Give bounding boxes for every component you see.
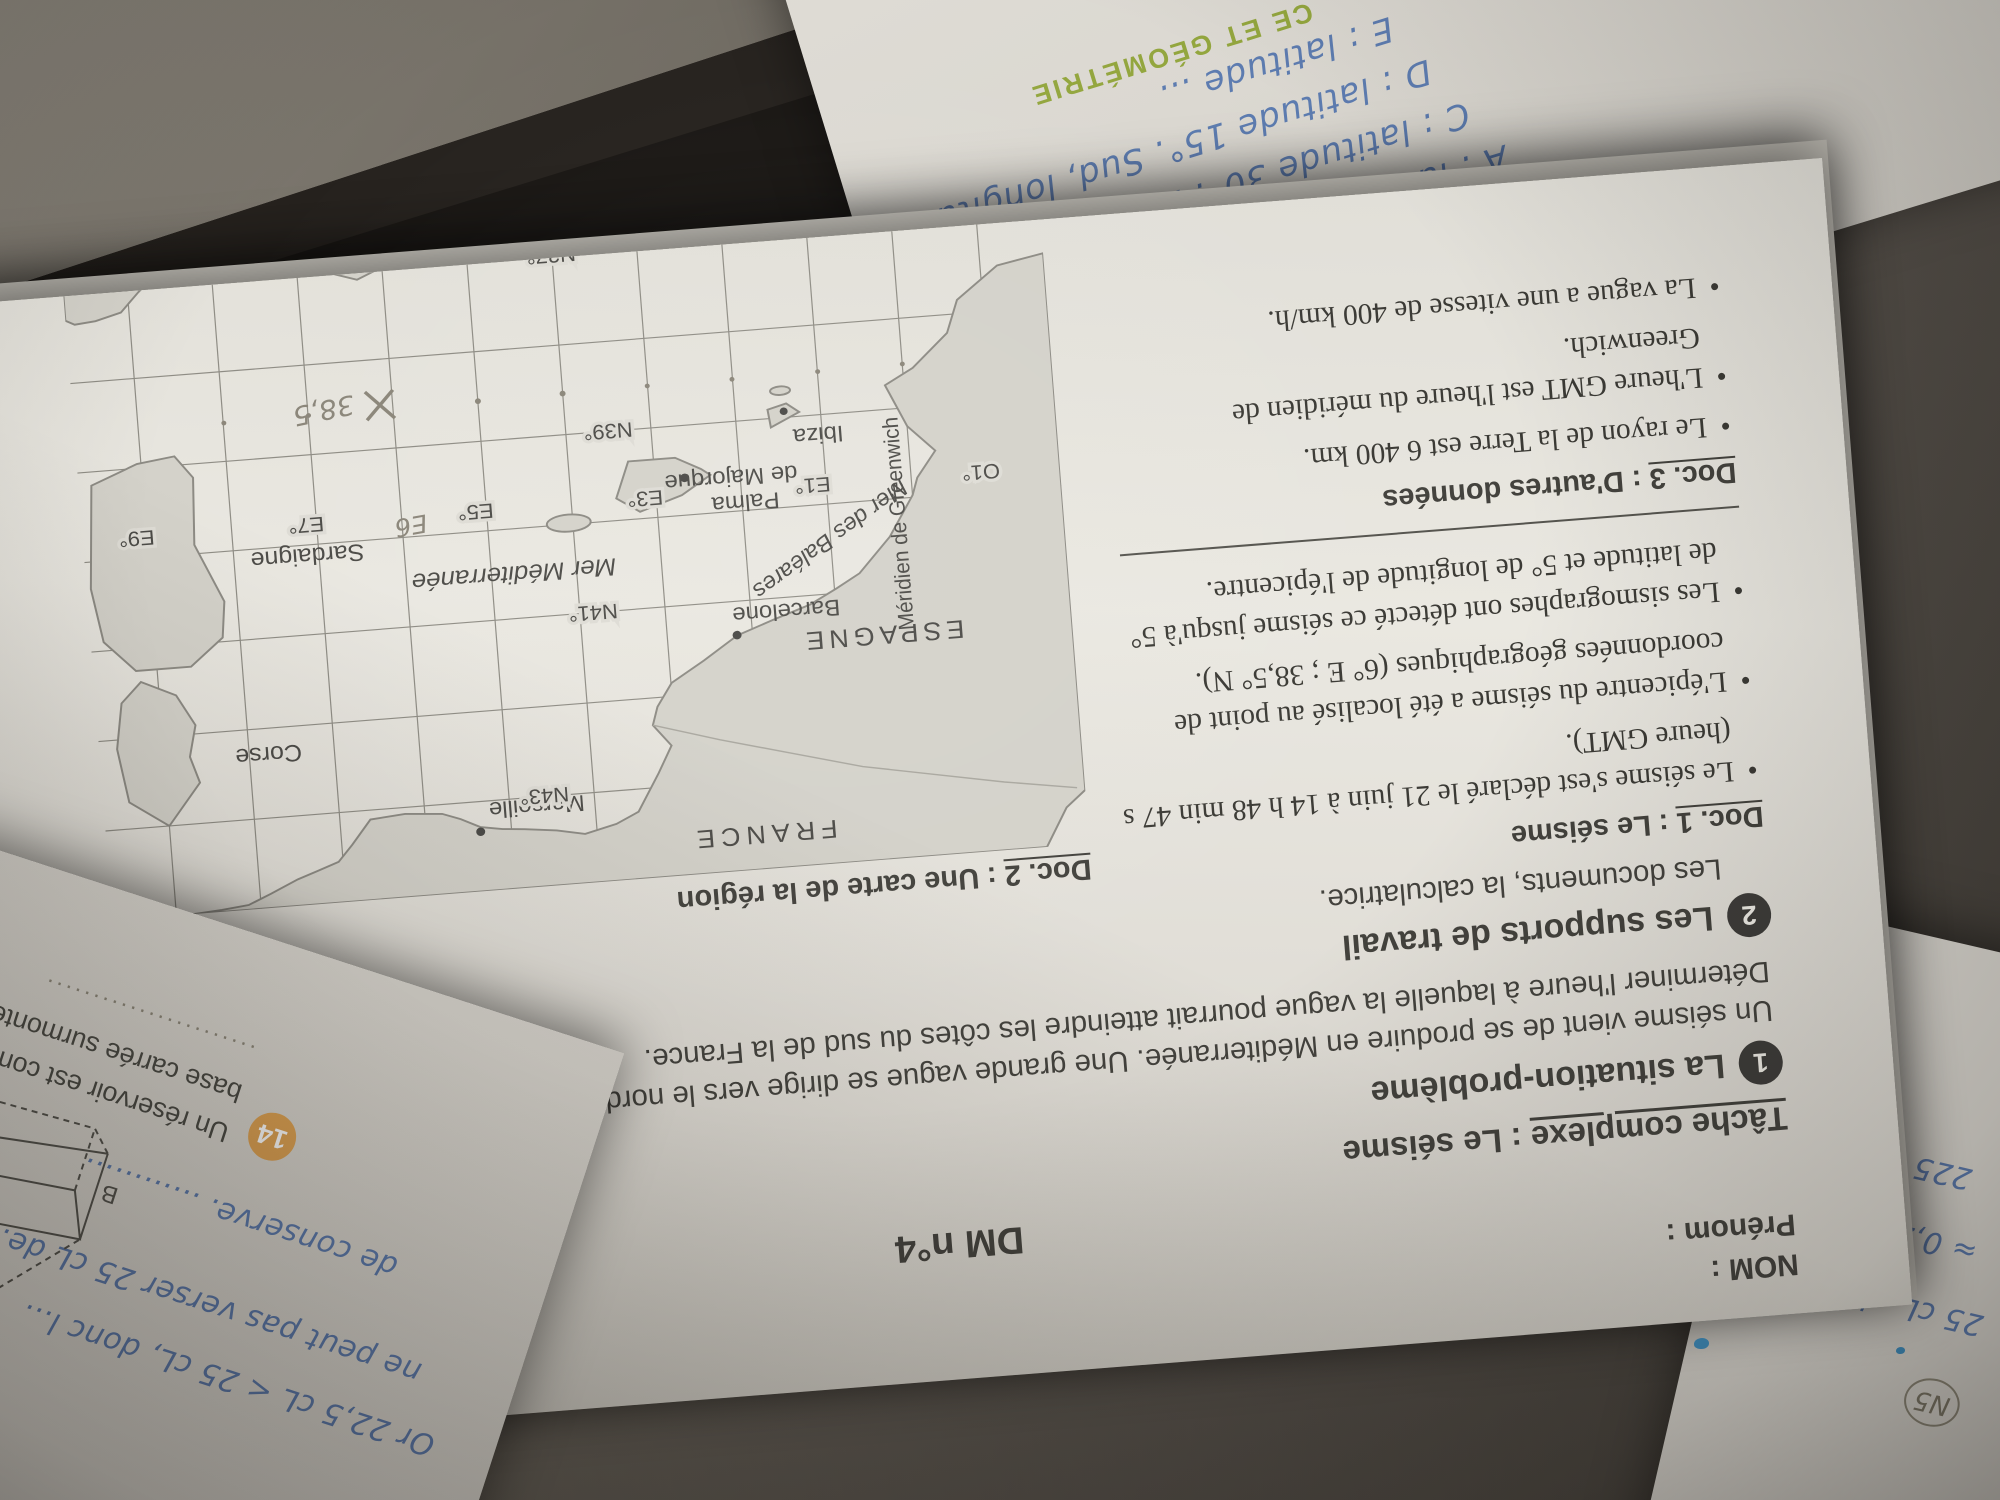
map-label-mediterranee: Mer Méditerranée	[411, 552, 618, 595]
figure-label-b: B	[98, 1178, 122, 1209]
exercise-number-badge: 14	[242, 1106, 302, 1166]
lon-label-e3: E3°	[626, 485, 663, 511]
lat-label-n43: N43°	[519, 782, 570, 809]
map-label-ibiza: Ibiza	[792, 421, 845, 450]
lat-label-n39: N39°	[583, 417, 634, 444]
map-label-corse: Corse	[234, 739, 303, 770]
doc3-bullets: Le rayon de la Terre est 6 400 km. L'heu…	[1082, 265, 1734, 495]
lat-label-n41: N41°	[568, 599, 619, 626]
ink-blot	[1896, 1347, 1905, 1354]
section-1-badge: 1	[1737, 1039, 1784, 1086]
pencil-epicenter-lat: 38,5	[290, 388, 358, 430]
lon-label-e5: E5°	[457, 499, 494, 525]
ink-blot	[1694, 1338, 1709, 1349]
pencil-epicenter-lon: E6	[392, 509, 430, 543]
prism-figure: A B	[0, 1077, 144, 1339]
lon-label-e9: E9°	[118, 525, 155, 551]
desk-photo: 225 cm³ ≈ 0,225 dm³… ≈ 0,225 L = 22,5 cL…	[0, 0, 2000, 1500]
lon-label-e1: E1°	[794, 472, 831, 498]
task-suffix: : Le séisme	[1341, 1120, 1532, 1172]
section-2-badge: 2	[1726, 891, 1773, 938]
pencil-circled-mark: N5	[1899, 1373, 1964, 1432]
task-label: Tâche complexe	[1530, 1100, 1789, 1157]
doc1-bullets: Le séisme s'est déclaré le 21 juin à 14 …	[1103, 530, 1761, 839]
lon-label-e7: E7°	[288, 512, 325, 538]
lon-label-o1: O1°	[961, 459, 1001, 485]
map-label-sardaigne: Sardaigne	[250, 538, 366, 573]
